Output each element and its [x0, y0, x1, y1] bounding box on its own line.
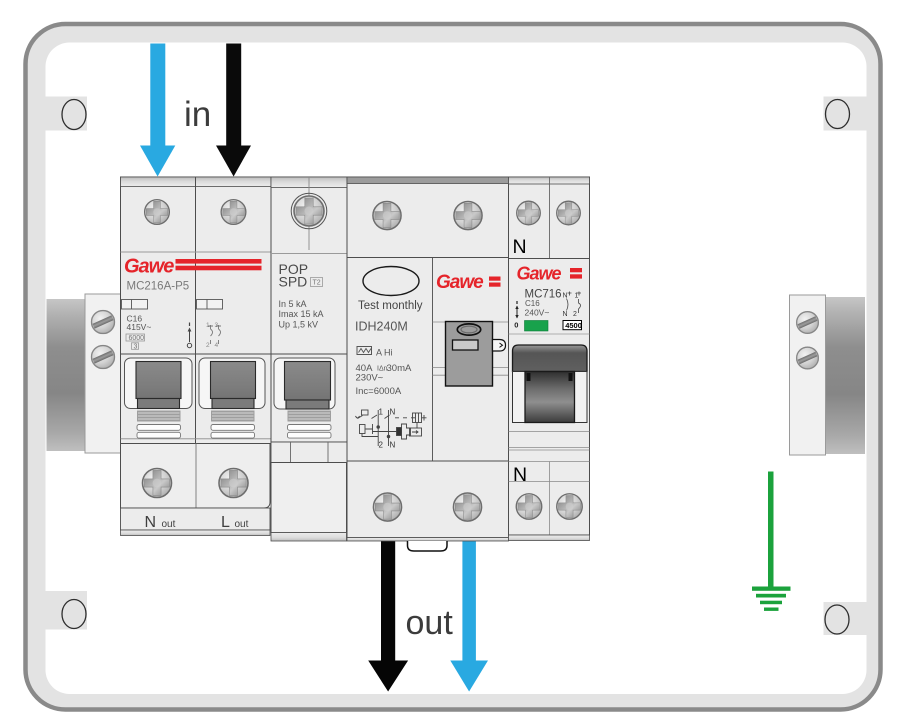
- svg-text:2: 2: [573, 311, 577, 318]
- svg-text:N: N: [513, 236, 527, 258]
- svg-text:L: L: [221, 514, 230, 531]
- svg-text:4: 4: [215, 342, 219, 349]
- svg-text:N: N: [145, 514, 157, 531]
- svg-text:SPD: SPD: [279, 274, 308, 290]
- svg-text:0: 0: [514, 321, 518, 330]
- svg-text:Gawe: Gawe: [124, 256, 174, 278]
- svg-text:In 5 kA: In 5 kA: [279, 299, 307, 309]
- svg-text:6000: 6000: [129, 335, 145, 342]
- svg-text:Gawe: Gawe: [436, 272, 484, 293]
- svg-text:1: 1: [379, 408, 384, 417]
- svg-text:in: in: [184, 95, 211, 134]
- svg-text:415V~: 415V~: [127, 322, 152, 332]
- svg-text:N: N: [390, 441, 396, 450]
- svg-text:MC216A-P5: MC216A-P5: [127, 281, 190, 293]
- svg-text:Inc=6000A: Inc=6000A: [356, 386, 402, 397]
- svg-text:2: 2: [206, 342, 210, 349]
- svg-text:N: N: [513, 464, 527, 486]
- svg-text:1: 1: [575, 293, 579, 300]
- svg-text:240V~: 240V~: [525, 308, 550, 318]
- svg-text:out: out: [162, 519, 176, 530]
- svg-text:30mA: 30mA: [387, 363, 412, 374]
- svg-text:2: 2: [379, 441, 384, 450]
- svg-text:N: N: [563, 311, 568, 318]
- svg-text:4500: 4500: [565, 321, 582, 330]
- svg-text:out: out: [406, 604, 454, 642]
- svg-text:T2: T2: [313, 280, 321, 287]
- svg-text:N: N: [390, 408, 396, 417]
- svg-text:3: 3: [215, 322, 219, 329]
- svg-text:Gawe: Gawe: [517, 264, 562, 284]
- svg-text:3: 3: [134, 343, 138, 350]
- svg-text:A Hi: A Hi: [376, 348, 393, 358]
- svg-text:Up 1,5 kV: Up 1,5 kV: [279, 319, 319, 329]
- svg-text:Test monthly: Test monthly: [358, 300, 423, 312]
- svg-text:Imax 15 kA: Imax 15 kA: [279, 309, 324, 319]
- svg-text:IDH240M: IDH240M: [355, 320, 408, 334]
- svg-text:230V~: 230V~: [356, 373, 384, 384]
- svg-text:1: 1: [206, 322, 210, 329]
- svg-text:out: out: [235, 519, 249, 530]
